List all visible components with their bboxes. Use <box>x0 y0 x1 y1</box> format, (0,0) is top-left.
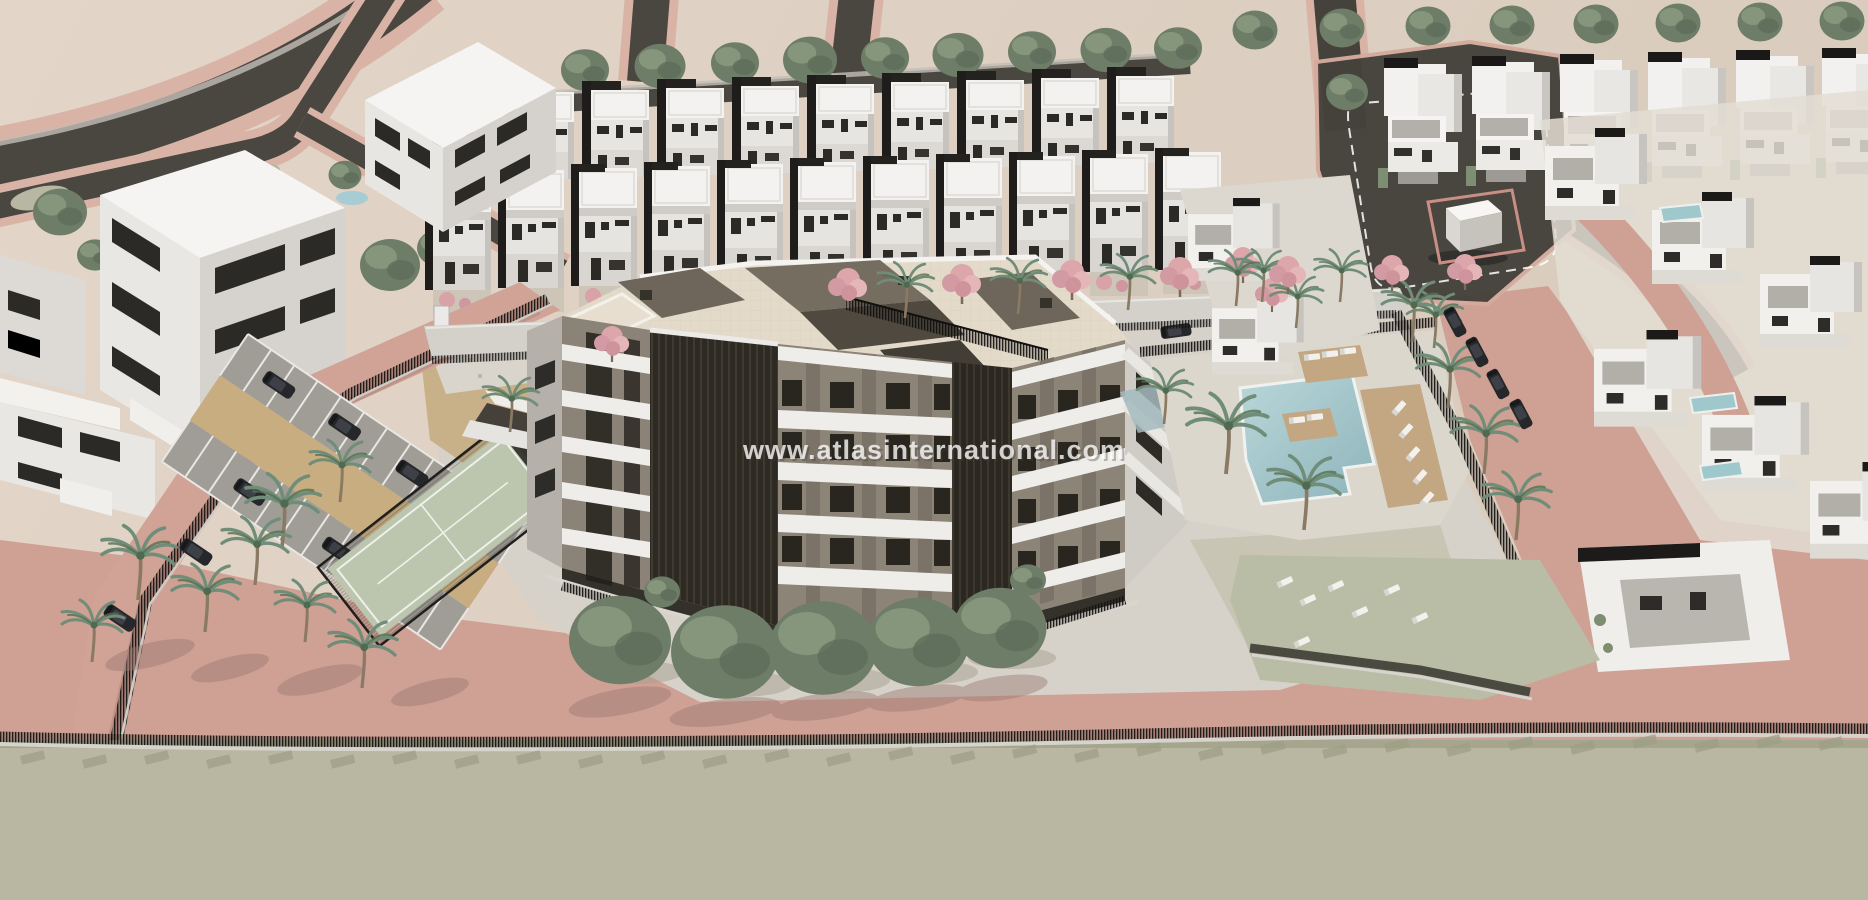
watermark-text: www.atlasinternational.com <box>742 435 1125 465</box>
watermark: www.atlasinternational.com www.atlasinte… <box>742 435 1127 467</box>
villa-corner-bottom-right <box>1578 540 1790 672</box>
south-lawn-with-loungers <box>1230 555 1600 700</box>
aerial-render-svg: www.atlasinternational.com www.atlasinte… <box>0 0 1868 900</box>
render-image: www.atlasinternational.com www.atlasinte… <box>0 0 1868 900</box>
